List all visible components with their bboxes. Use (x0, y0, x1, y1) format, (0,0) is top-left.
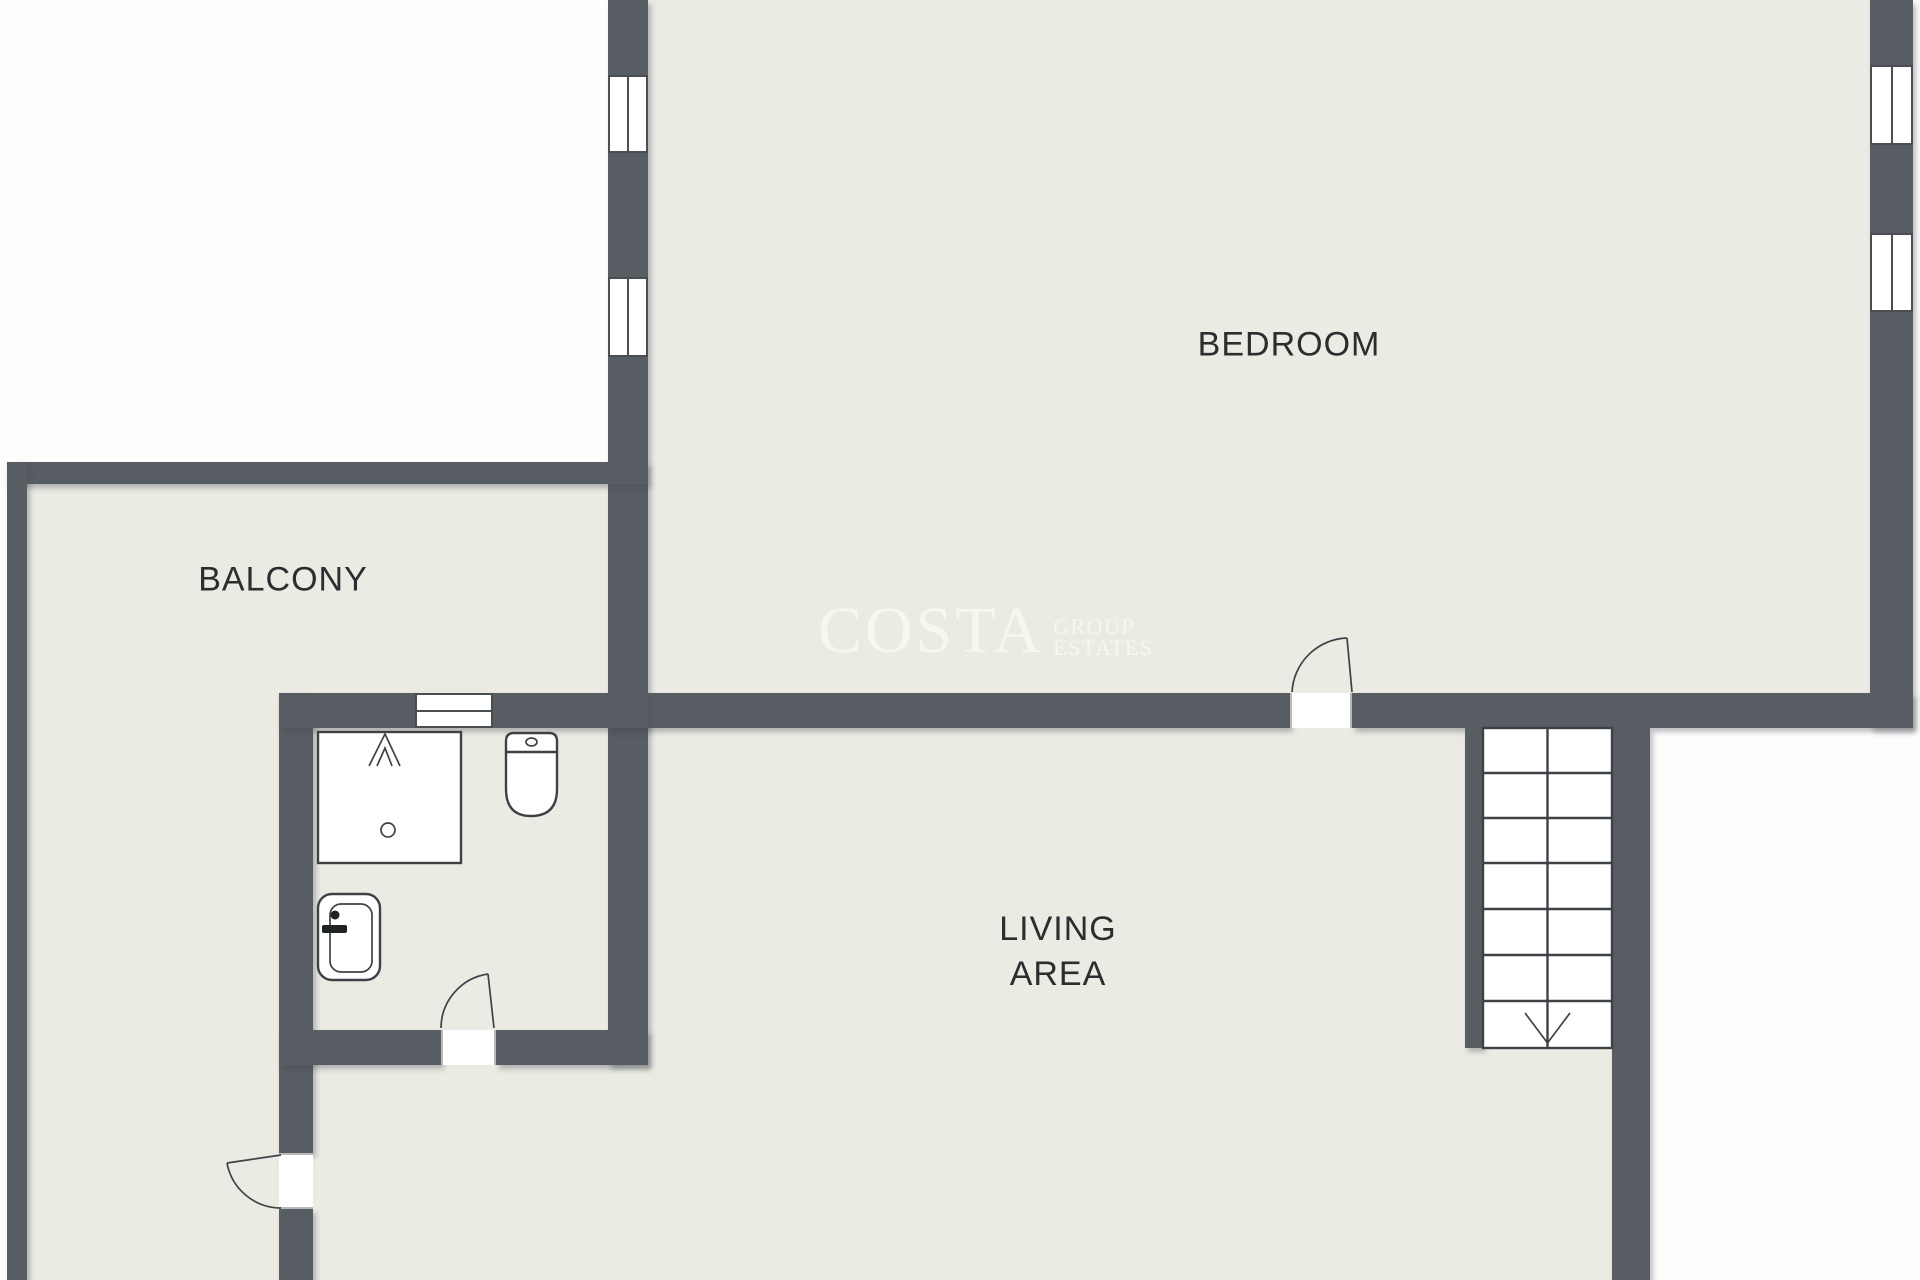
bathroom-door-opening (441, 1030, 496, 1065)
window-bedroom-right-1 (1870, 65, 1913, 145)
balcony-door-opening (279, 1153, 313, 1209)
balcony-label: BALCONY (198, 558, 368, 603)
watermark-suffix-line1: GROUP (1053, 616, 1153, 637)
watermark: COSTA GROUP ESTATES (818, 600, 1154, 662)
watermark-suffix-line2: ESTATES (1053, 637, 1153, 658)
wall-bedroom-bottom-right (1352, 693, 1913, 728)
wall-balcony-left (7, 462, 27, 1280)
window-bathroom (415, 693, 493, 728)
wall-balcony-divider-lower (279, 1209, 313, 1280)
window-bedroom-left-1 (608, 75, 648, 153)
wall-bedroom-left (608, 0, 648, 1065)
floor-plan: BEDROOM BALCONY LIVING AREA COSTA GROUP … (0, 0, 1920, 1280)
living-area-label: LIVING AREA (999, 907, 1116, 997)
wall-bedroom-bottom-left (608, 693, 1290, 728)
bedroom-door-opening (1290, 693, 1352, 728)
living-area-floor (608, 693, 1650, 1280)
wall-bathroom-bottom-right (496, 1030, 648, 1065)
living-area-label-line1: LIVING (999, 907, 1116, 952)
wall-balcony-top (7, 462, 648, 484)
window-bedroom-right-2 (1870, 233, 1913, 312)
watermark-brand: COSTA (818, 600, 1044, 662)
watermark-suffix: GROUP ESTATES (1053, 616, 1153, 658)
living-area-label-line2: AREA (999, 952, 1116, 997)
bedroom-label: BEDROOM (1198, 323, 1381, 368)
wall-living-right (1612, 728, 1650, 1280)
wall-balcony-divider-upper (279, 693, 313, 1153)
wall-stairwell-left (1465, 728, 1483, 1048)
window-bedroom-left-2 (608, 277, 648, 357)
wall-bathroom-bottom-left (279, 1030, 441, 1065)
